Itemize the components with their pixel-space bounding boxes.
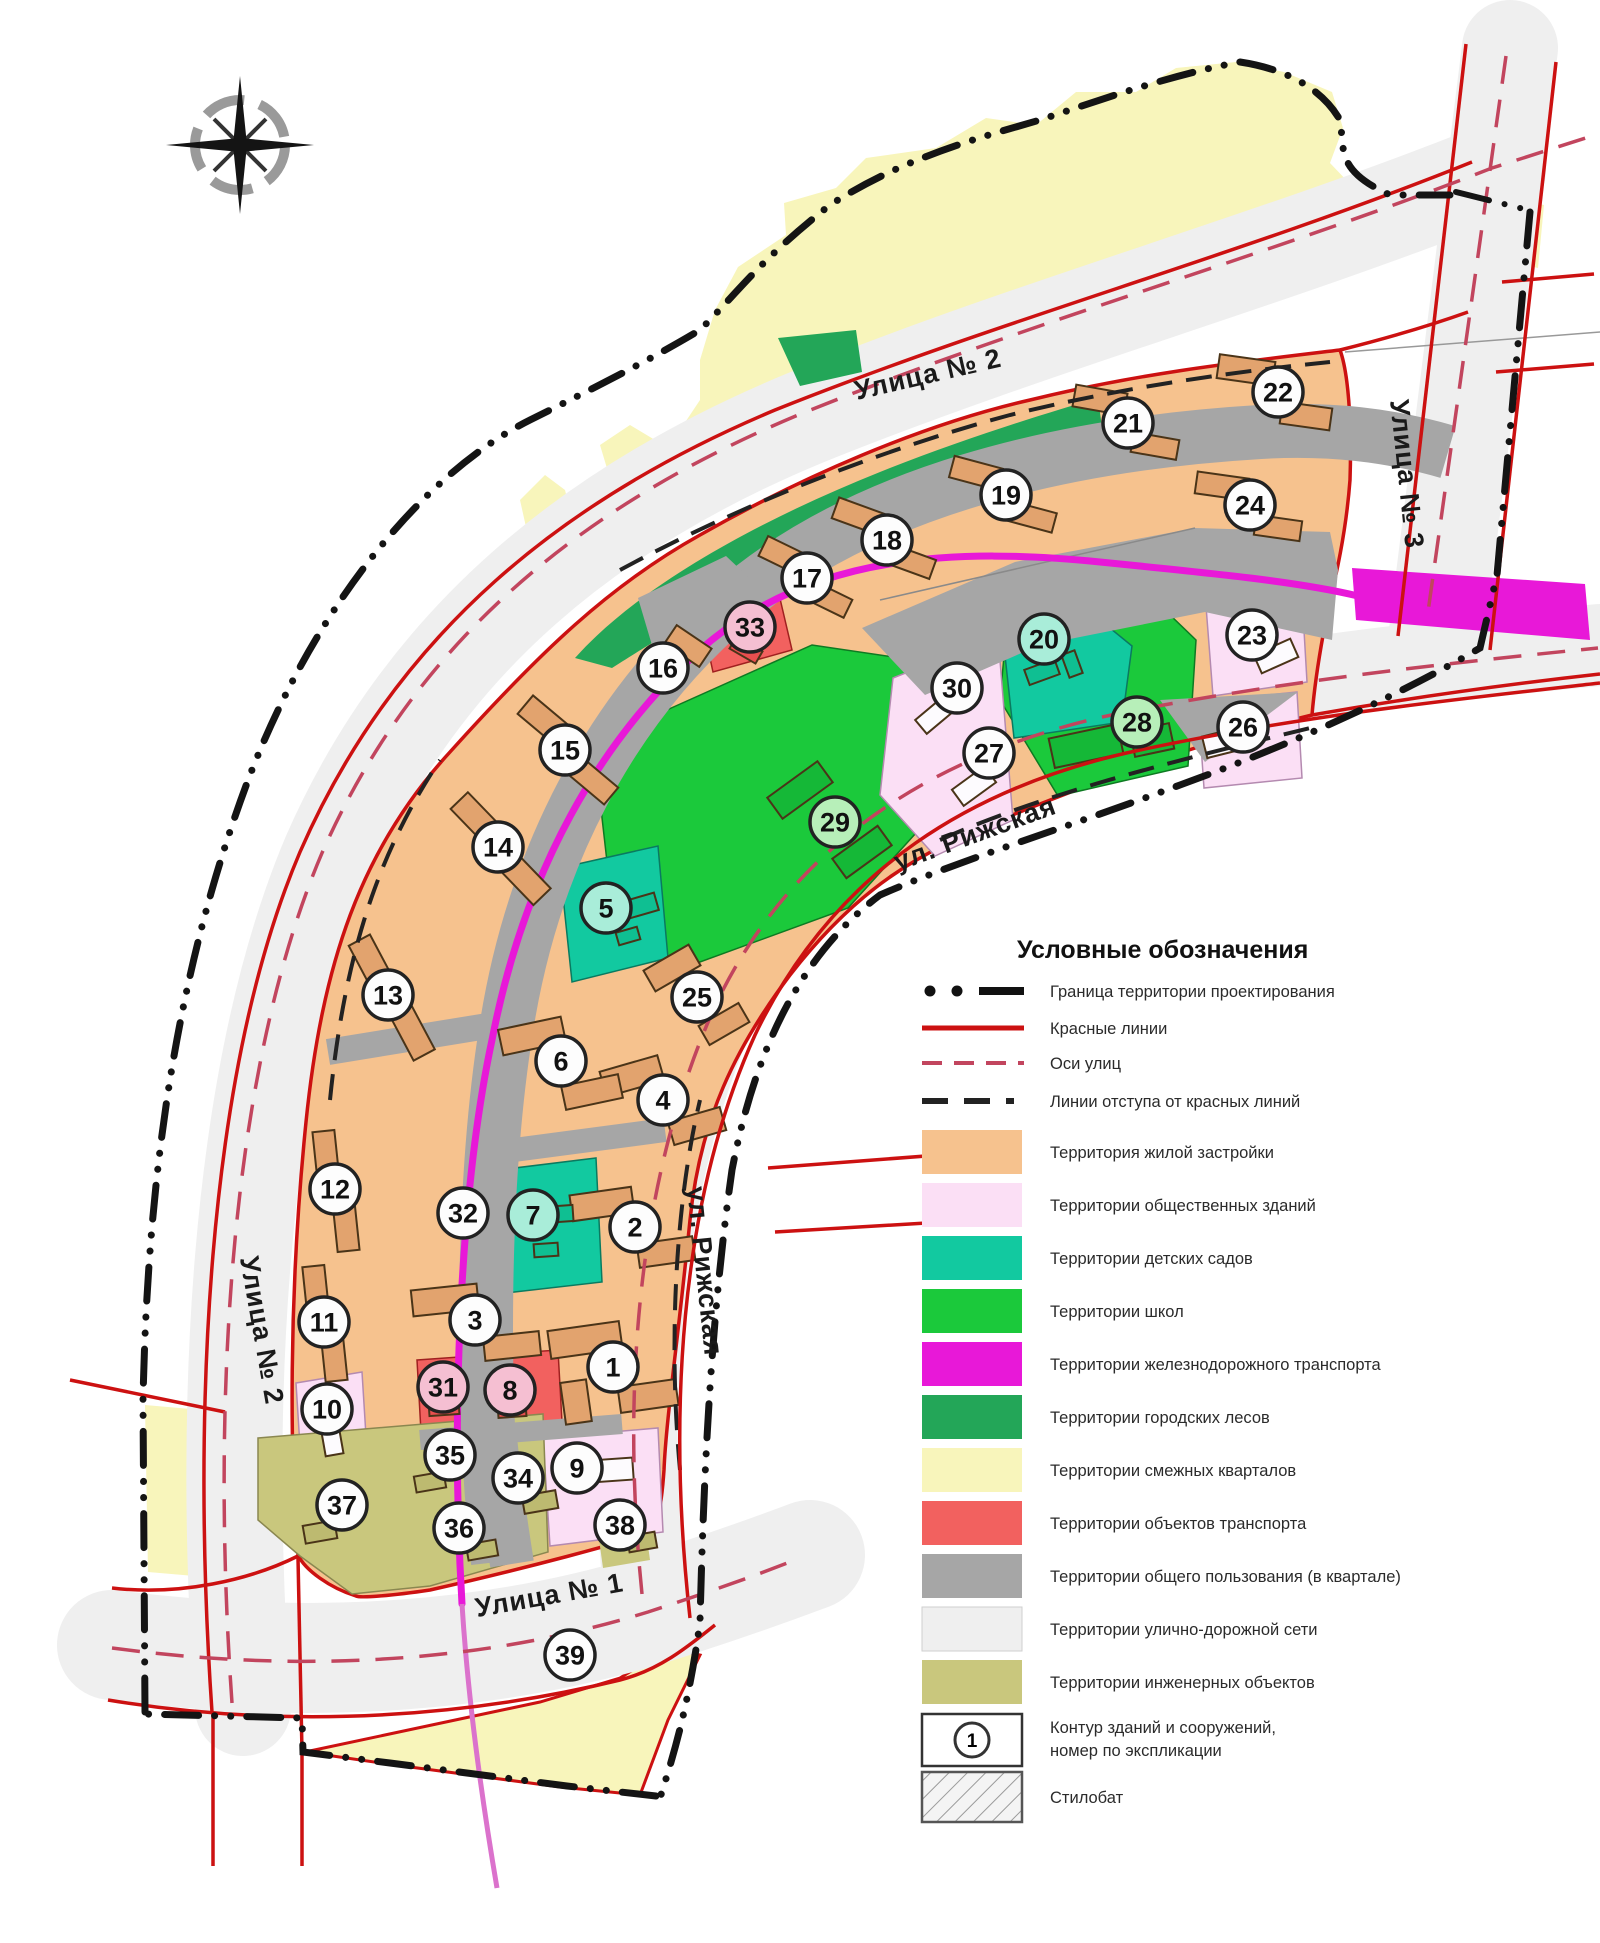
compass-rose: [166, 76, 314, 214]
block-number: 30: [942, 674, 972, 704]
site-plan-map: Улица № 2Улица № 3ул. Рижскаяул. Рижская…: [0, 0, 1600, 1943]
block-number: 6: [553, 1047, 568, 1077]
legend-stylobate-item: Стилобат: [922, 1772, 1124, 1822]
legend-area-label: Территории объектов транспорта: [1050, 1515, 1307, 1533]
block-marker: 27: [964, 728, 1014, 778]
stylobate-symbol: [922, 1772, 1022, 1822]
legend-swatch-residential: [922, 1130, 1022, 1174]
legend-swatch-kindergartens: [922, 1236, 1022, 1280]
block-marker: 2: [610, 1202, 660, 1252]
legend-area-item: Территории школ: [922, 1289, 1184, 1333]
legend-area-item: Территории железнодорожного транспорта: [922, 1342, 1382, 1386]
block-number: 37: [327, 1491, 357, 1521]
block-marker: 4: [638, 1075, 688, 1125]
stylobate-label: Стилобат: [1050, 1789, 1124, 1807]
block-number: 3: [467, 1306, 482, 1336]
block-marker: 23: [1227, 610, 1277, 660]
block-marker: 16: [638, 643, 688, 693]
block-number: 33: [735, 613, 765, 643]
legend-line-item: Граница территории проектирования: [925, 983, 1335, 1001]
block-number: 23: [1237, 621, 1267, 651]
block-number: 21: [1113, 409, 1143, 439]
red-line-stub: [298, 1558, 302, 1752]
block-marker: 17: [782, 553, 832, 603]
block-number: 39: [555, 1641, 585, 1671]
contour-symbol-number: 1: [967, 1731, 978, 1752]
legend-swatch-schools: [922, 1289, 1022, 1333]
block-marker: 15: [540, 725, 590, 775]
legend-area-item: Территория жилой застройки: [922, 1130, 1274, 1174]
legend-area-label: Территории инженерных объектов: [1050, 1674, 1315, 1692]
block-marker: 33: [725, 602, 775, 652]
block-number: 19: [991, 481, 1021, 511]
block-number: 32: [448, 1199, 478, 1229]
legend-area-label: Территории железнодорожного транспорта: [1050, 1356, 1382, 1374]
legend-area-label: Территории общего пользования (в квартал…: [1050, 1568, 1401, 1586]
legend-area-item: Территории улично-дорожной сети: [922, 1607, 1318, 1651]
block-marker: 8: [485, 1365, 535, 1415]
block-marker: 22: [1253, 367, 1303, 417]
legend-line-label: Линии отступа от красных линий: [1050, 1093, 1300, 1111]
block-marker: 6: [536, 1036, 586, 1086]
block-marker: 25: [672, 972, 722, 1022]
building-outline: [560, 1379, 592, 1424]
block-marker: 20: [1019, 614, 1069, 664]
block-number: 26: [1228, 713, 1258, 743]
block-number: 15: [550, 736, 580, 766]
block-number: 20: [1029, 625, 1059, 655]
block-marker: 29: [810, 797, 860, 847]
block-marker: 11: [299, 1297, 349, 1347]
block-marker: 34: [493, 1453, 543, 1503]
block-number: 29: [820, 808, 850, 838]
block-number: 18: [872, 526, 902, 556]
legend-swatch-adjacent-blocks: [922, 1448, 1022, 1492]
block-number: 4: [655, 1086, 670, 1116]
legend-swatch-transport-objects: [922, 1501, 1022, 1545]
legend-line-item: Красные линии: [922, 1020, 1167, 1038]
legend-contour-item: 1 Контур зданий и сооружений, номер по э…: [922, 1714, 1276, 1766]
block-number: 16: [648, 654, 678, 684]
block-number: 2: [627, 1213, 642, 1243]
block-marker: 12: [310, 1164, 360, 1214]
block-number: 28: [1122, 708, 1152, 738]
legend-swatch-street-network: [922, 1607, 1022, 1651]
legend-area-label: Территории детских садов: [1050, 1250, 1253, 1268]
legend-area-items: Территория жилой застройкиТерритории общ…: [922, 1130, 1401, 1704]
legend-area-item: Территории общего пользования (в квартал…: [922, 1554, 1401, 1598]
legend-line-label: Красные линии: [1050, 1020, 1167, 1038]
block-marker: 38: [595, 1500, 645, 1550]
block-number: 5: [598, 894, 613, 924]
legend: Условные обозначения Граница территории …: [922, 936, 1401, 1822]
block-marker: 37: [317, 1480, 367, 1530]
block-marker: 26: [1218, 702, 1268, 752]
legend-area-item: Территории городских лесов: [922, 1395, 1270, 1439]
block-number: 9: [569, 1454, 584, 1484]
block-number: 22: [1263, 378, 1293, 408]
block-number: 13: [373, 981, 403, 1011]
legend-swatch-common-use: [922, 1554, 1022, 1598]
legend-area-item: Территории смежных кварталов: [922, 1448, 1296, 1492]
block-marker: 18: [862, 515, 912, 565]
legend-area-label: Территории улично-дорожной сети: [1050, 1621, 1318, 1639]
legend-swatch-railway-transport: [922, 1342, 1022, 1386]
block-marker: 1: [588, 1342, 638, 1392]
block-number: 17: [792, 564, 822, 594]
block-number: 24: [1235, 491, 1265, 521]
legend-swatch-urban-forests: [922, 1395, 1022, 1439]
legend-line-label: Оси улиц: [1050, 1055, 1122, 1073]
block-marker: 31: [418, 1362, 468, 1412]
legend-area-label: Территории городских лесов: [1050, 1409, 1270, 1427]
legend-line-item: Оси улиц: [922, 1055, 1122, 1073]
boundary-symbol-dot: [952, 986, 963, 997]
block-number: 14: [483, 833, 513, 863]
block-number: 36: [444, 1514, 474, 1544]
legend-area-label: Территории смежных кварталов: [1050, 1462, 1296, 1480]
block-marker: 3: [450, 1295, 500, 1345]
legend-area-item: Территории объектов транспорта: [922, 1501, 1307, 1545]
block-marker: 39: [545, 1630, 595, 1680]
block-number: 7: [525, 1201, 540, 1231]
block-number: 11: [310, 1308, 339, 1338]
block-number: 31: [428, 1373, 458, 1403]
block-number: 34: [503, 1464, 533, 1494]
block-marker: 14: [473, 822, 523, 872]
legend-line-item: Линии отступа от красных линий: [922, 1093, 1300, 1111]
block-marker: 5: [581, 883, 631, 933]
block-marker: 10: [302, 1384, 352, 1434]
block-number: 12: [320, 1175, 350, 1205]
building-outline: [534, 1243, 559, 1258]
block-number: 35: [435, 1441, 465, 1471]
boundary-symbol-dot: [925, 986, 936, 997]
legend-area-item: Территории детских садов: [922, 1236, 1253, 1280]
legend-area-label: Территории школ: [1050, 1303, 1184, 1321]
legend-swatch-public-buildings: [922, 1183, 1022, 1227]
block-marker: 30: [932, 663, 982, 713]
block-marker: 32: [438, 1188, 488, 1238]
block-marker: 36: [434, 1503, 484, 1553]
block-marker: 9: [552, 1443, 602, 1493]
block-marker: 19: [981, 470, 1031, 520]
block-number: 25: [682, 983, 712, 1013]
block-marker: 21: [1103, 398, 1153, 448]
legend-line-label: Граница территории проектирования: [1050, 983, 1335, 1001]
legend-area-item: Территории инженерных объектов: [922, 1660, 1315, 1704]
block-number: 27: [974, 739, 1004, 769]
compass-needle-ew: [166, 138, 314, 152]
block-number: 8: [502, 1376, 517, 1406]
block-marker: 7: [508, 1190, 558, 1240]
block-marker: 13: [363, 970, 413, 1020]
block-number: 1: [605, 1353, 620, 1383]
block-marker: 35: [425, 1430, 475, 1480]
block-number: 38: [605, 1511, 635, 1541]
legend-area-item: Территории общественных зданий: [922, 1183, 1316, 1227]
block-marker: 24: [1225, 480, 1275, 530]
legend-title: Условные обозначения: [1017, 936, 1308, 964]
block-number: 10: [312, 1395, 342, 1425]
contour-label-line2: номер по экспликации: [1050, 1742, 1222, 1760]
legend-area-label: Территория жилой застройки: [1050, 1144, 1274, 1162]
contour-label-line1: Контур зданий и сооружений,: [1050, 1719, 1276, 1737]
legend-swatch-engineering: [922, 1660, 1022, 1704]
legend-line-items: Граница территории проектированияКрасные…: [922, 983, 1335, 1111]
block-marker: 28: [1112, 697, 1162, 747]
legend-area-label: Территории общественных зданий: [1050, 1197, 1316, 1215]
